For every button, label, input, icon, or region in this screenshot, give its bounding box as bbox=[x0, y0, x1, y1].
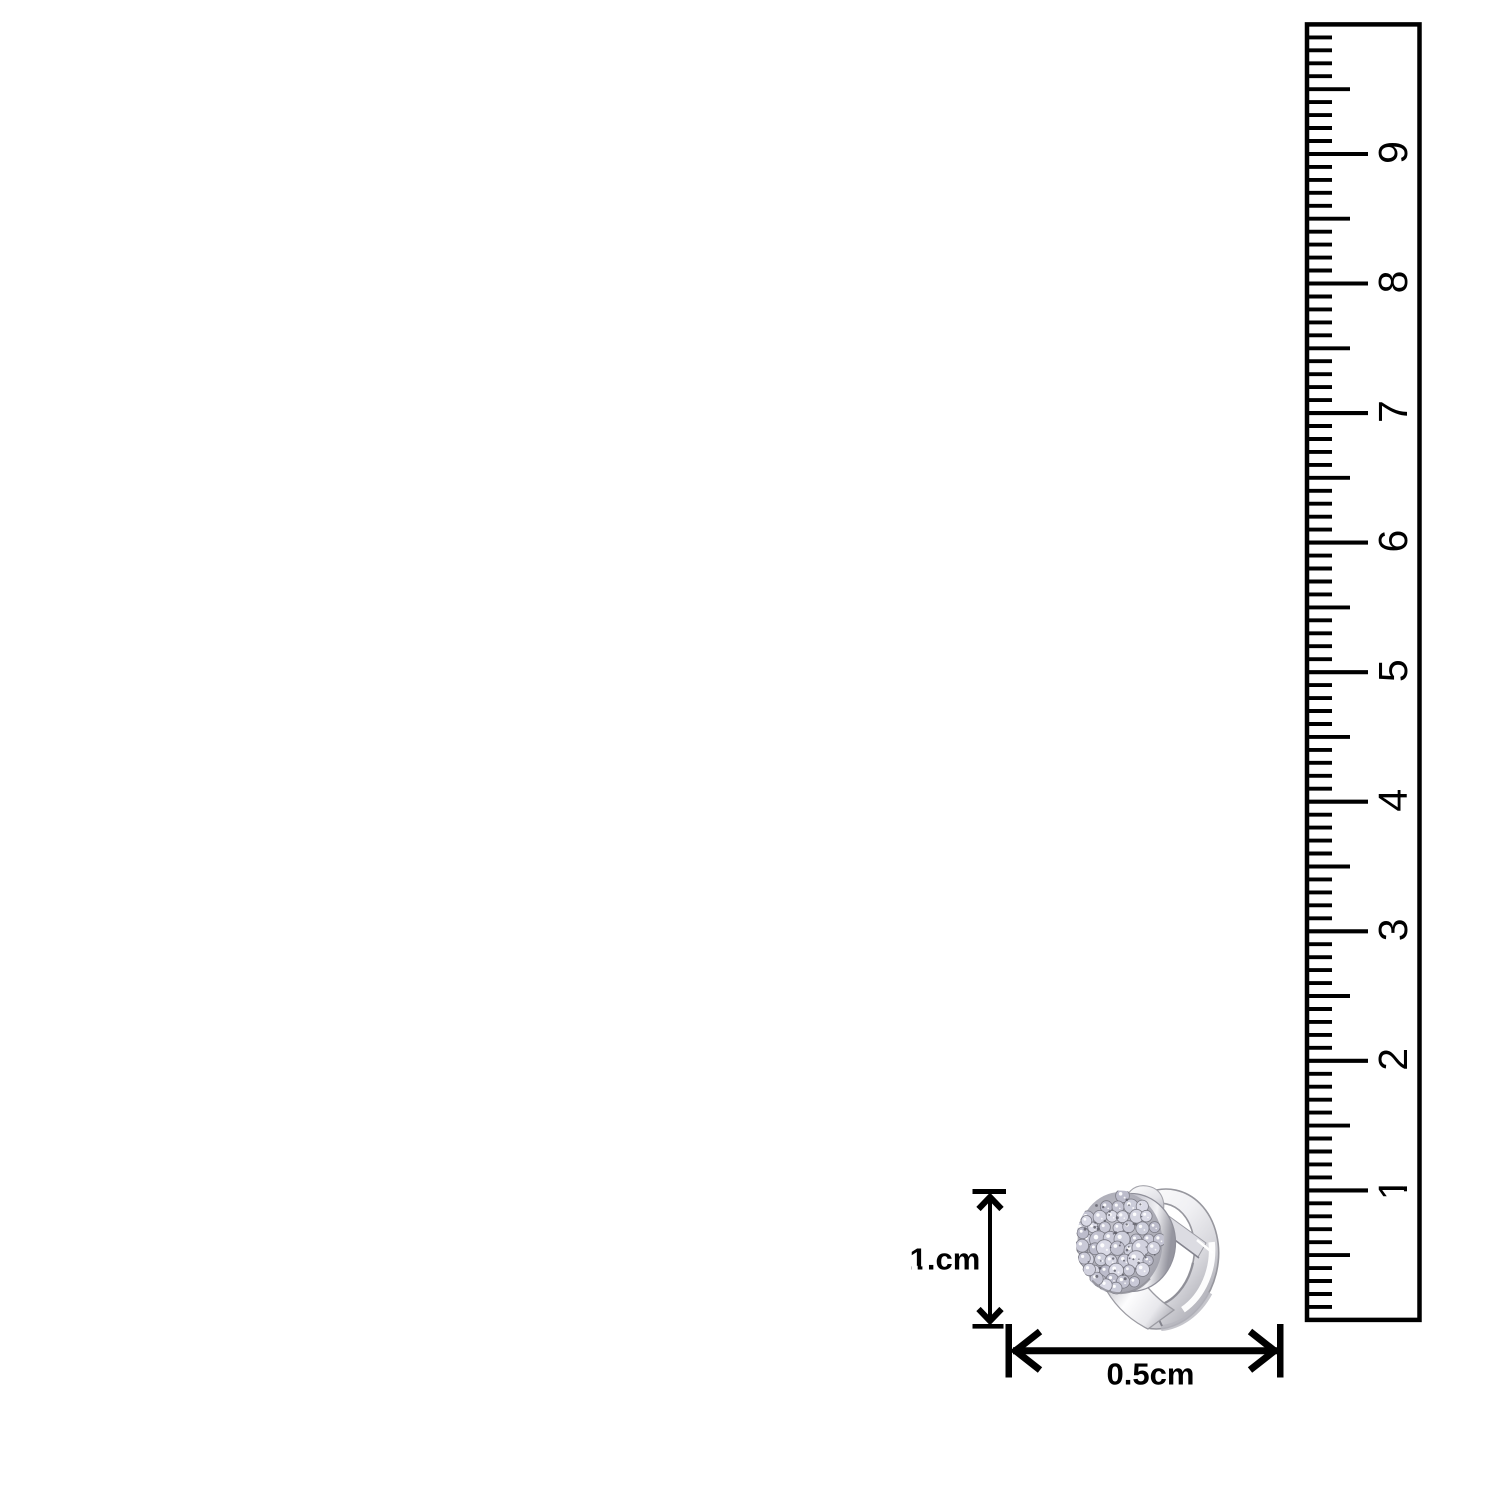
svg-text:2: 2 bbox=[1370, 1048, 1416, 1071]
svg-text:3: 3 bbox=[1370, 918, 1416, 941]
svg-text:1.cm: 1.cm bbox=[910, 1242, 981, 1277]
svg-text:8: 8 bbox=[1370, 271, 1416, 294]
svg-text:5: 5 bbox=[1370, 659, 1416, 682]
svg-text:9: 9 bbox=[1370, 141, 1416, 164]
svg-text:7: 7 bbox=[1370, 400, 1416, 423]
svg-text:1: 1 bbox=[1370, 1177, 1416, 1200]
svg-text:0.5cm: 0.5cm bbox=[1107, 1357, 1195, 1392]
svg-text:6: 6 bbox=[1370, 530, 1416, 553]
svg-text:4: 4 bbox=[1370, 789, 1416, 812]
